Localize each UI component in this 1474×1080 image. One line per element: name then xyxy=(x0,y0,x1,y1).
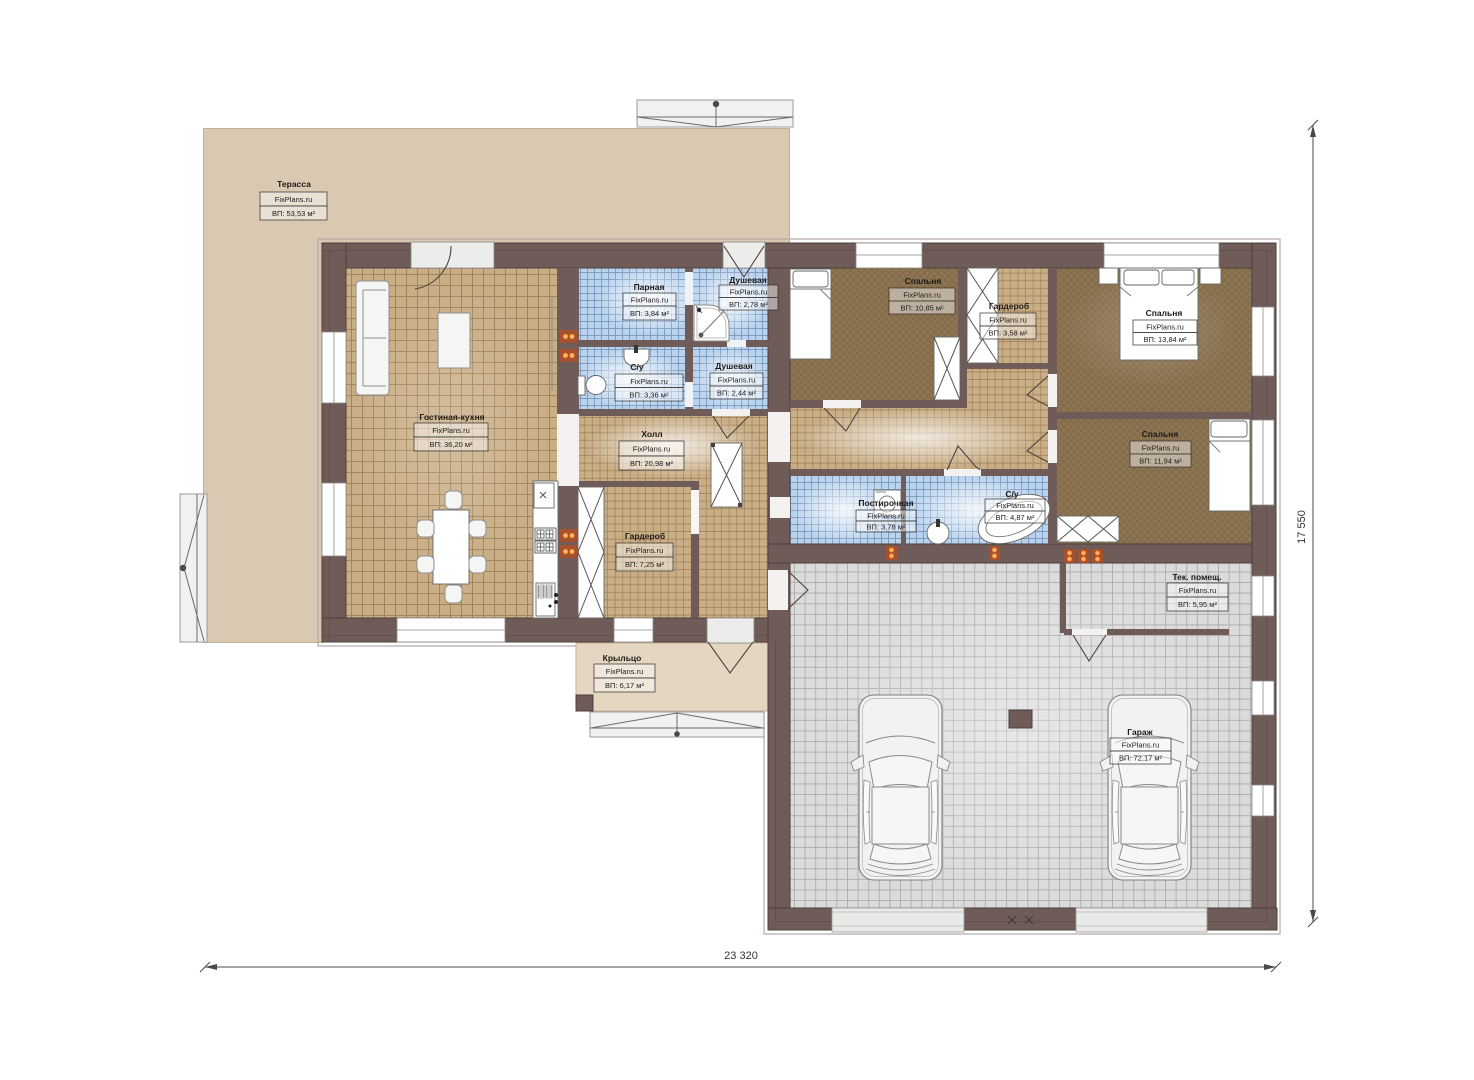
svg-text:Крыльцо: Крыльцо xyxy=(603,653,642,663)
svg-text:FixPlans.ru: FixPlans.ru xyxy=(1146,323,1184,332)
svg-text:Терасса: Терасса xyxy=(277,179,311,189)
svg-text:FixPlans.ru: FixPlans.ru xyxy=(432,426,470,435)
svg-text:ВП: 2,44 м²: ВП: 2,44 м² xyxy=(717,389,756,398)
svg-text:ВП: 36,20 м²: ВП: 36,20 м² xyxy=(429,440,473,449)
svg-text:Гардероб: Гардероб xyxy=(625,531,665,541)
svg-text:FixPlans.ru: FixPlans.ru xyxy=(718,376,756,385)
svg-text:ВП: 5,95 м²: ВП: 5,95 м² xyxy=(1178,600,1217,609)
svg-text:ВП: 7,25 м²: ВП: 7,25 м² xyxy=(625,560,664,569)
svg-text:ВП: 3,36 м²: ВП: 3,36 м² xyxy=(630,391,669,400)
svg-text:С/у: С/у xyxy=(630,362,644,372)
svg-text:С/у: С/у xyxy=(1005,489,1019,499)
svg-text:FixPlans.ru: FixPlans.ru xyxy=(630,377,668,386)
svg-text:FixPlans.ru: FixPlans.ru xyxy=(1142,444,1180,453)
svg-text:23 320: 23 320 xyxy=(724,950,758,962)
svg-text:ВП: 3,58 м²: ВП: 3,58 м² xyxy=(989,329,1028,338)
svg-text:Постирочная: Постирочная xyxy=(858,498,913,508)
svg-text:ВП: 6,17 м²: ВП: 6,17 м² xyxy=(605,681,644,690)
svg-text:FixPlans.ru: FixPlans.ru xyxy=(275,195,313,204)
svg-text:Душевая: Душевая xyxy=(729,275,767,285)
svg-text:Парная: Парная xyxy=(634,282,665,292)
svg-text:FixPlans.ru: FixPlans.ru xyxy=(996,501,1034,510)
svg-text:FixPlans.ru: FixPlans.ru xyxy=(730,288,768,297)
svg-text:FixPlans.ru: FixPlans.ru xyxy=(989,316,1027,325)
svg-text:ВП: 2,78 м²: ВП: 2,78 м² xyxy=(729,300,768,309)
svg-text:Гостиная-кухня: Гостиная-кухня xyxy=(419,412,484,422)
svg-text:ВП: 4,87 м²: ВП: 4,87 м² xyxy=(996,513,1035,522)
svg-text:ВП: 3,78 м²: ВП: 3,78 м² xyxy=(867,523,906,532)
svg-text:Гараж: Гараж xyxy=(1127,727,1153,737)
svg-text:Тек. помещ.: Тек. помещ. xyxy=(1172,572,1221,582)
svg-text:FixPlans.ru: FixPlans.ru xyxy=(606,667,644,676)
svg-text:Гардероб: Гардероб xyxy=(989,301,1029,311)
svg-text:ВП: 13,84 м²: ВП: 13,84 м² xyxy=(1143,335,1187,344)
svg-text:ВП: 20,98 м²: ВП: 20,98 м² xyxy=(630,459,674,468)
svg-text:Холл: Холл xyxy=(641,429,662,439)
svg-text:FixPlans.ru: FixPlans.ru xyxy=(1122,741,1160,750)
svg-text:ВП: 53,53 м²: ВП: 53,53 м² xyxy=(272,209,316,218)
svg-text:ВП: 72,17 м²: ВП: 72,17 м² xyxy=(1119,754,1163,763)
svg-text:FixPlans.ru: FixPlans.ru xyxy=(626,546,664,555)
svg-text:FixPlans.ru: FixPlans.ru xyxy=(633,445,671,454)
svg-text:Спальня: Спальня xyxy=(905,276,942,286)
svg-text:Спальня: Спальня xyxy=(1146,308,1183,318)
svg-text:FixPlans.ru: FixPlans.ru xyxy=(867,512,905,521)
svg-text:ВП: 11,94 м²: ВП: 11,94 м² xyxy=(1139,457,1182,466)
svg-text:Спальня: Спальня xyxy=(1142,429,1179,439)
svg-text:ВП: 10,85 м²: ВП: 10,85 м² xyxy=(900,304,944,313)
svg-text:ВП: 3,84 м²: ВП: 3,84 м² xyxy=(630,309,669,318)
svg-text:17 550: 17 550 xyxy=(1296,510,1308,544)
svg-text:FixPlans.ru: FixPlans.ru xyxy=(1179,586,1217,595)
svg-text:FixPlans.ru: FixPlans.ru xyxy=(631,296,669,305)
svg-text:Душевая: Душевая xyxy=(715,361,753,371)
svg-text:FixPlans.ru: FixPlans.ru xyxy=(903,291,941,300)
